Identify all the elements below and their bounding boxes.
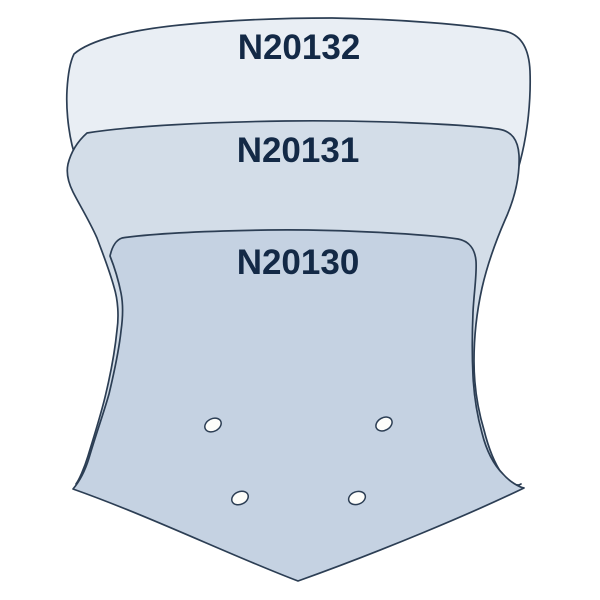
windscreen-label-n20132: N20132 xyxy=(238,28,361,67)
windscreen-label-n20130: N20130 xyxy=(237,243,360,282)
windscreen-label-n20131: N20131 xyxy=(237,131,360,170)
windscreen-shape-n20130 xyxy=(73,230,524,581)
diagram-canvas: N20132 N20131 N20130 xyxy=(0,0,600,600)
windscreen-size-diagram: N20132 N20131 N20130 xyxy=(0,0,600,600)
